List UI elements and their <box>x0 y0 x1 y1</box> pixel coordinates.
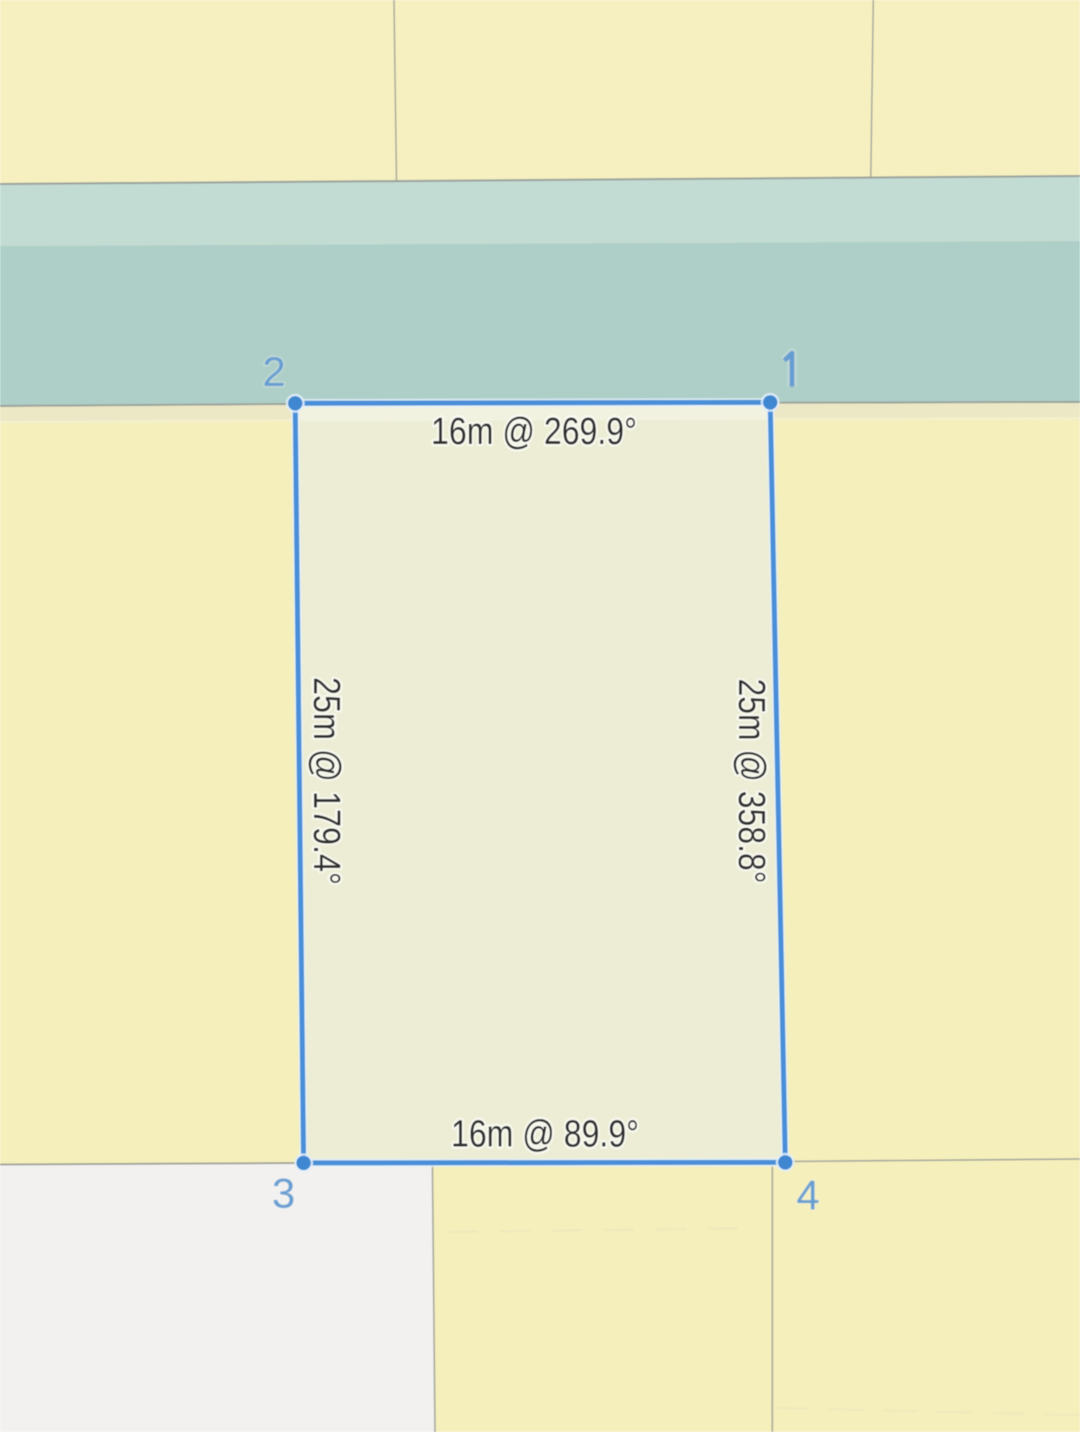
svg-text:4: 4 <box>796 1172 819 1219</box>
svg-text:16m @ 89.9°: 16m @ 89.9° <box>451 1114 639 1156</box>
svg-text:25m @ 358.8°: 25m @ 358.8° <box>730 679 772 884</box>
svg-text:25m @ 179.4°: 25m @ 179.4° <box>305 677 347 885</box>
svg-text:16m @ 269.9°: 16m @ 269.9° <box>431 411 637 453</box>
svg-text:2: 2 <box>262 348 285 395</box>
svg-text:3: 3 <box>272 1170 295 1217</box>
